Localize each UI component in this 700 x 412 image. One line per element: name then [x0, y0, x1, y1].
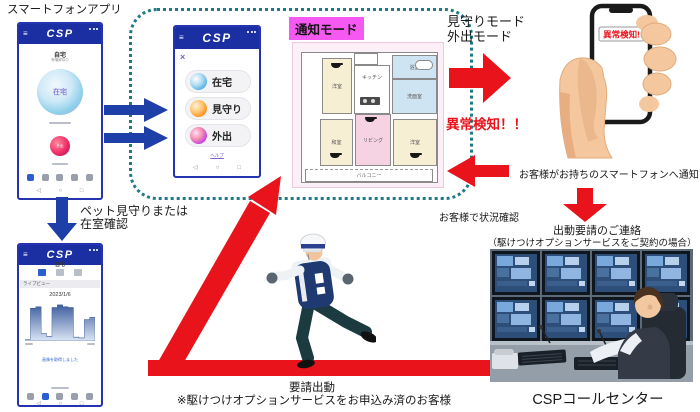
live-message: 画像を取得しました [19, 357, 101, 363]
recents-icon[interactable]: □ [80, 188, 84, 194]
vest-badge [315, 273, 324, 284]
room-label: 洋室 [332, 83, 342, 90]
hand-with-phone-illustration: 異常検知! [558, 2, 698, 160]
microphone-icon [539, 325, 543, 329]
back-leg [316, 304, 366, 332]
call-center-illustration [490, 249, 693, 382]
phone-home-screen: ≡ CSP 自宅 警備解除中 在宅 外出 ◁ ○ □ [17, 22, 103, 200]
home-icon[interactable]: ○ [216, 165, 220, 171]
phone-home-bottom-nav [19, 174, 101, 181]
nav-home-icon[interactable] [27, 174, 34, 181]
front-glove [267, 273, 278, 284]
quick-mode-label: 外出 [57, 144, 64, 149]
kitchen-counter-icon [360, 97, 380, 105]
mode-watch-orb-icon [190, 100, 207, 117]
nav-history-icon[interactable] [42, 174, 49, 181]
room-label: 洋室 [410, 139, 420, 146]
helmet [301, 234, 326, 252]
back-icon[interactable]: ◁ [37, 401, 42, 407]
arrow-right-red [449, 53, 511, 103]
phone-notch [609, 7, 633, 13]
home-icon[interactable]: ○ [59, 401, 63, 407]
mode-pill-home[interactable]: 在宅 [185, 70, 251, 93]
recents-icon[interactable]: □ [237, 165, 241, 171]
finger [643, 73, 671, 95]
back-icon[interactable]: ◁ [37, 188, 42, 194]
mode-dial-label: 在宅 [53, 87, 67, 97]
finger [644, 47, 676, 71]
liveview-tab-bar: ライブビュー [20, 280, 100, 288]
mode-home-label: 在宅 [212, 74, 232, 89]
nav-settings-icon[interactable] [86, 393, 93, 400]
room-balcony: バルコニー [305, 169, 433, 182]
arrow-down-red [563, 188, 607, 222]
helmet-brim [303, 250, 321, 253]
menu-icon[interactable]: ≡ [23, 251, 28, 259]
back-icon[interactable]: ◁ [193, 165, 198, 171]
mode-pill-watch[interactable]: 見守り [185, 97, 251, 120]
arrow-left-red [447, 155, 509, 187]
status-icons [247, 31, 256, 33]
bathtub-icon [415, 60, 433, 70]
mode-home-orb-icon [190, 73, 207, 90]
status-icons [89, 249, 98, 251]
nav-device-icon[interactable] [71, 174, 78, 181]
room-kitchen: キッチン [354, 65, 390, 114]
room-bath: 浴室 [392, 55, 437, 79]
nav-liveview-icon[interactable] [42, 393, 49, 400]
phone-alert-text: 異常検知! [603, 30, 640, 40]
notification-mode-badge: 通知モード [288, 16, 365, 41]
room-tatami: 和室 [320, 119, 353, 166]
phone-mode-select: ≡ CSP × 在宅 見守り 外出 ヘルプ ◁ ○ □ [173, 25, 261, 178]
live-title: 自宅 [19, 261, 101, 268]
telephone-icon [492, 353, 518, 369]
arrow-down-blue [47, 197, 77, 241]
phone-home-header: ≡ CSP [19, 24, 101, 44]
csp-logo: CSP [46, 249, 73, 261]
room-label: リビング [363, 137, 383, 144]
live-date: 2023/1/6 [19, 292, 101, 298]
room-bedroom2: 洋室 [393, 119, 437, 166]
csp-logo: CSP [202, 31, 231, 45]
security-guard-illustration [258, 226, 376, 372]
close-icon[interactable]: × [180, 52, 185, 62]
status-icons [89, 28, 98, 30]
dispatch-label-line2: ※駆けつけオプションサービスをお申込み済のお客様 [172, 392, 456, 408]
room-label: 洗面室 [407, 93, 422, 100]
floorplan: 洋室 キッチン 浴室 洗面室 和室 リビング 洋室 バルコニー [301, 52, 438, 183]
room-label: バルコニー [357, 172, 382, 179]
arrow-right-blue-1 [104, 98, 168, 122]
tab-camera-icon[interactable] [56, 269, 64, 276]
recents-icon[interactable]: □ [80, 401, 84, 407]
activity-chart [25, 303, 95, 341]
phone-live-bottom-nav [19, 393, 101, 400]
help-link[interactable]: ヘルプ [175, 153, 259, 159]
axis-label-placeholder [25, 343, 33, 345]
liveview-tab-label[interactable]: ライブビュー [23, 281, 50, 287]
phone-live-view: ≡ CSP 自宅 ライブビュー 2023/1/6 画像を取得しました ◁ ○ □ [17, 243, 103, 407]
back-glove [343, 274, 354, 285]
tab-liveview-icon[interactable] [38, 269, 46, 276]
phone-mode-header: ≡ CSP [175, 27, 259, 49]
mode-pill-out[interactable]: 外出 [185, 124, 251, 147]
helmet-band [301, 244, 325, 249]
arrow-right-blue-2 [104, 126, 168, 150]
room-living: リビング [355, 114, 391, 166]
nav-device-icon[interactable] [71, 393, 78, 400]
axis-label-placeholder [87, 343, 95, 345]
vest-badge [317, 287, 326, 295]
micro-text-placeholder [52, 163, 68, 165]
room-closet [354, 53, 378, 65]
room-washroom: 洗面室 [392, 79, 437, 114]
floorplan-panel: 洋室 キッチン 浴室 洗面室 和室 リビング 洋室 バルコニー [292, 42, 444, 188]
room-label: キッチン [362, 74, 382, 81]
front-leg [302, 308, 308, 358]
finger [639, 96, 659, 112]
quick-mode-button[interactable]: 外出 [50, 136, 70, 156]
nav-camera-icon[interactable] [56, 174, 63, 181]
nav-settings-icon[interactable] [86, 174, 93, 181]
nav-camera-icon[interactable] [56, 393, 63, 400]
android-nav-bar: ◁ ○ □ [19, 401, 101, 407]
mode-out-orb-icon [190, 127, 207, 144]
micro-text-placeholder [49, 122, 71, 124]
android-nav-bar: ◁ ○ □ [19, 188, 101, 194]
finger [641, 23, 671, 45]
live-tabs [19, 269, 101, 276]
mode-out-label: 外出 [212, 128, 232, 143]
menu-icon[interactable]: ≡ [179, 34, 184, 42]
android-nav-bar: ◁ ○ □ [175, 165, 259, 171]
mode-watch-label: 見守り [212, 101, 242, 116]
call-center-label: CSPコールセンター [520, 388, 676, 409]
menu-icon[interactable]: ≡ [23, 30, 28, 38]
room-label: 和室 [331, 139, 341, 146]
home-icon[interactable]: ○ [59, 188, 63, 194]
mode-dial-button[interactable]: 在宅 [37, 69, 83, 115]
nav-home-icon[interactable] [27, 393, 34, 400]
microphone-icon [597, 329, 601, 333]
front-arm [276, 270, 300, 276]
timestamp-placeholder [51, 387, 69, 389]
home-subtitle: 警備解除中 [19, 58, 101, 63]
tab-sensor-icon[interactable] [74, 269, 82, 276]
vest [291, 256, 337, 310]
csp-logo: CSP [46, 28, 73, 40]
